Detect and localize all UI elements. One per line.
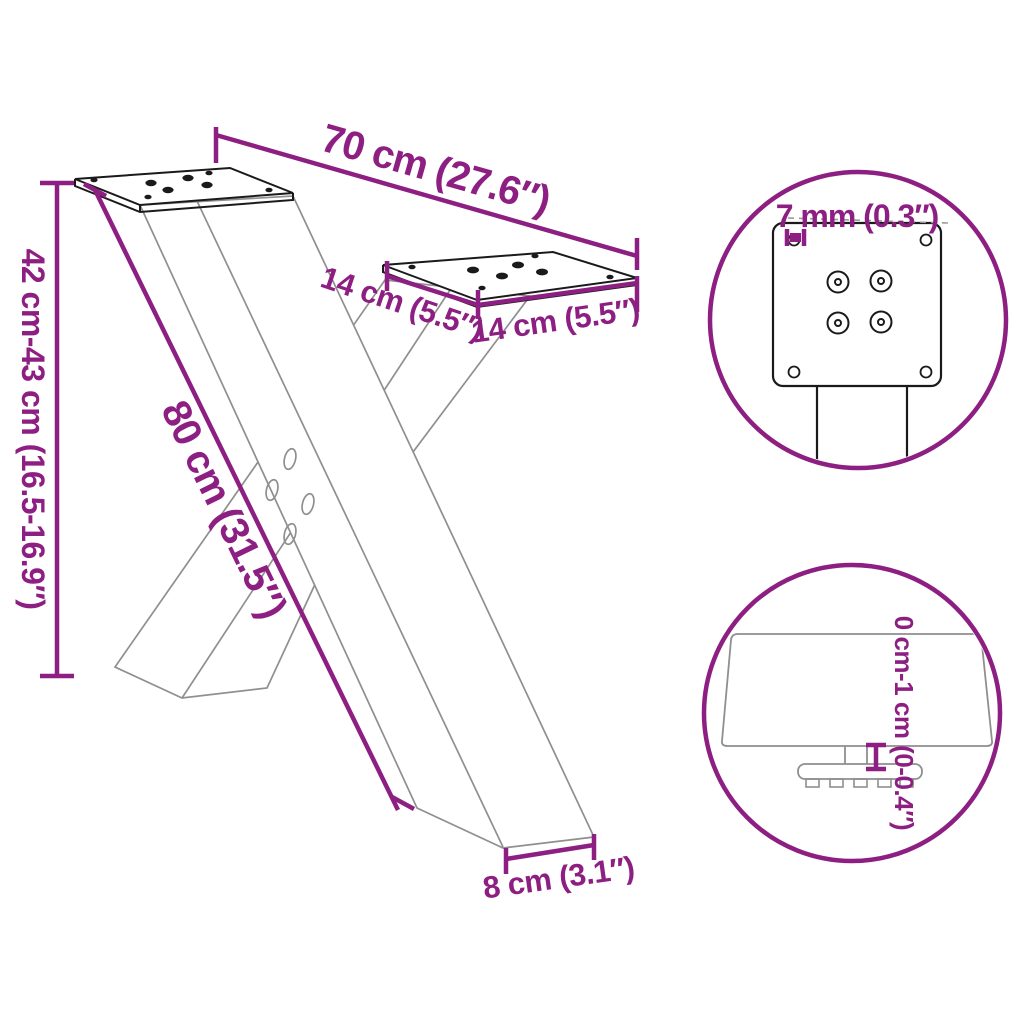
bolt-hole bbox=[145, 180, 156, 186]
product-dimension-diagram: 70 cm (27.6″) 42 cm-43 cm (16.5-16.9″) 8… bbox=[0, 0, 1024, 1024]
foot-tooth bbox=[806, 779, 819, 787]
foot-tooth bbox=[830, 779, 843, 787]
bolt-hole bbox=[201, 182, 212, 188]
screw-hole bbox=[531, 254, 538, 259]
dimension-label-height-range: 42 cm-43 cm (16.5-16.9″) bbox=[15, 249, 51, 610]
screw-hole bbox=[205, 171, 212, 176]
screw-hole bbox=[408, 265, 415, 270]
screw-hole bbox=[144, 195, 151, 200]
diagram-canvas: 70 cm (27.6″) 42 cm-43 cm (16.5-16.9″) 8… bbox=[0, 0, 1024, 1024]
leg-end-face bbox=[722, 634, 992, 746]
dimension-label-hole-size: 7 mm (0.3″) bbox=[776, 198, 939, 234]
detail-plate-content bbox=[773, 218, 948, 470]
detail-circle-foot: 0 cm-1 cm (0-0.4″) bbox=[704, 565, 1000, 861]
detail-foot-content bbox=[722, 634, 992, 787]
screw-hole bbox=[478, 286, 485, 291]
bolt-hole bbox=[182, 175, 193, 181]
dimension-label-adjustable-height: 0 cm-1 cm (0-0.4″) bbox=[889, 616, 919, 830]
dimension-label-top-width: 70 cm (27.6″) bbox=[316, 116, 554, 223]
foot-tooth bbox=[854, 779, 867, 787]
screw-hole bbox=[265, 188, 272, 193]
bolt-hole bbox=[496, 273, 508, 280]
screw-hole bbox=[606, 275, 613, 280]
dimension-height-range: 42 cm-43 cm (16.5-16.9″) bbox=[15, 183, 74, 676]
detail-circle-plate: 7 mm (0.3″) bbox=[710, 172, 1006, 470]
bolt-hole bbox=[536, 269, 548, 276]
detail-circle-outline bbox=[704, 565, 1000, 861]
screw-hole bbox=[90, 178, 97, 183]
bolt-hole bbox=[512, 262, 524, 269]
detail-plate-face bbox=[773, 223, 941, 386]
bolt-hole bbox=[467, 267, 479, 274]
bolt-hole bbox=[162, 187, 173, 193]
